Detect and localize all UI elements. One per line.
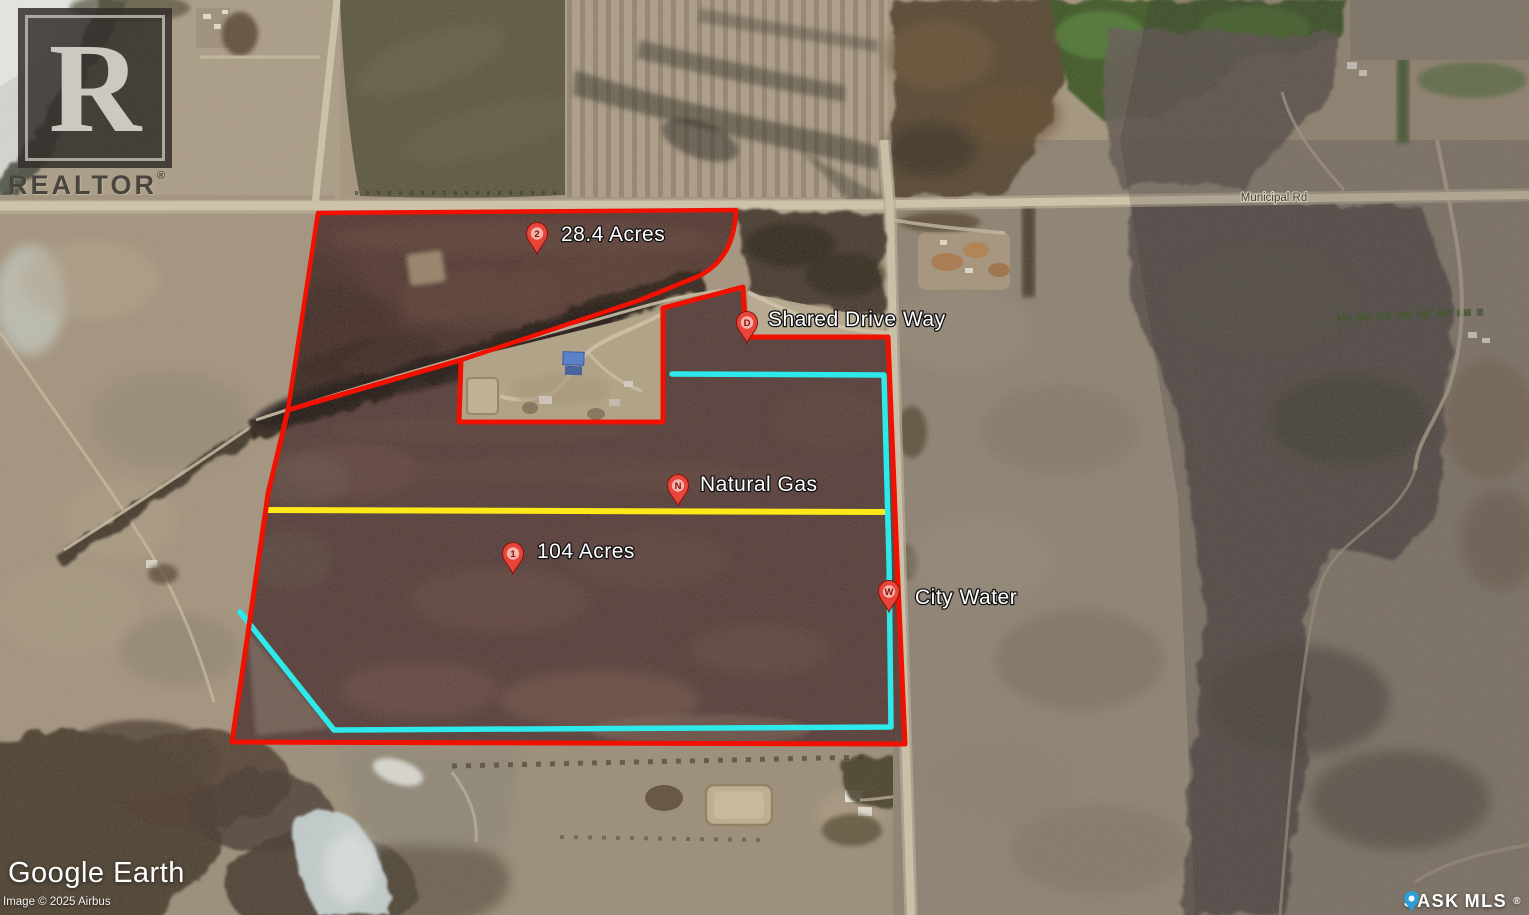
- pin-label: Natural Gas: [700, 473, 818, 496]
- satellite-map[interactable]: Municipal Rd 2 28.4 Acres D Shared Drive…: [0, 0, 1529, 915]
- svg-text:2: 2: [534, 229, 539, 240]
- imagery-credit: Image © 2025 Airbus: [3, 896, 111, 908]
- realtor-logo: R: [18, 8, 172, 168]
- realtor-r-mark: R: [18, 8, 172, 168]
- svg-text:D: D: [744, 318, 751, 329]
- pin-label: 28.4 Acres: [561, 223, 665, 246]
- road-name-label: Municipal Rd: [1241, 192, 1307, 204]
- registered-mark: ®: [1513, 896, 1522, 907]
- mls-pin-icon: [1404, 891, 1419, 912]
- pin-label: Shared Drive Way: [768, 308, 946, 331]
- svg-text:1: 1: [510, 549, 516, 560]
- realtor-wordmark: REALTOR®: [8, 170, 172, 201]
- svg-text:W: W: [885, 587, 894, 598]
- photo-grain: [0, 0, 1529, 915]
- google-earth-logo: Google Earth: [8, 857, 185, 890]
- sask-mls-logo: SASK MLS ®: [1404, 891, 1522, 912]
- terrain: [0, 0, 1529, 915]
- pin-label: City Water: [915, 586, 1017, 609]
- gas-line[interactable]: [266, 510, 884, 512]
- svg-text:N: N: [675, 481, 682, 492]
- aerial-map-view[interactable]: Municipal Rd 2 28.4 Acres D Shared Drive…: [0, 0, 1529, 915]
- registered-mark: ®: [157, 170, 165, 182]
- pin-label: 104 Acres: [537, 540, 635, 563]
